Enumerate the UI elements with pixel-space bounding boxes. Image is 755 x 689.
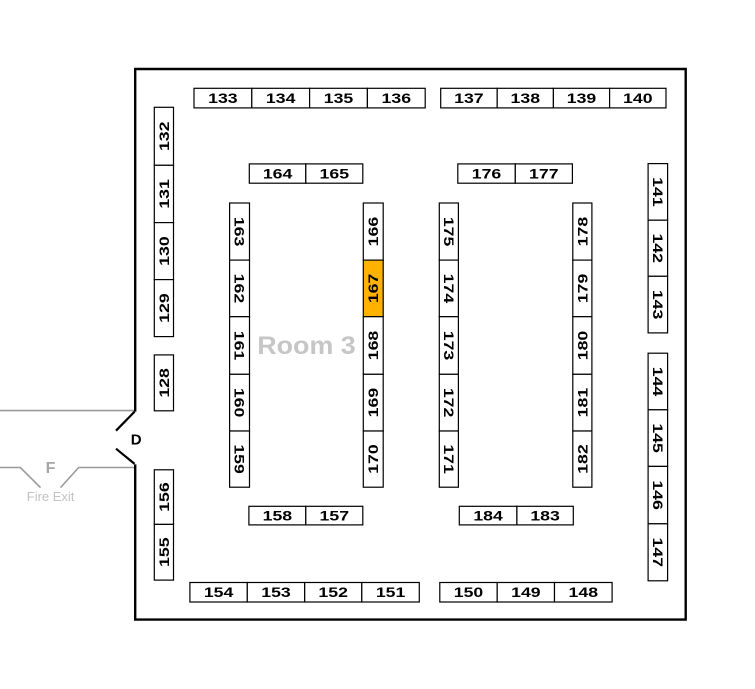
- svg-text:141: 141: [650, 177, 666, 207]
- svg-text:145: 145: [650, 423, 666, 453]
- svg-text:182: 182: [574, 444, 590, 474]
- svg-text:176: 176: [472, 166, 502, 182]
- svg-text:142: 142: [650, 233, 666, 263]
- svg-text:132: 132: [156, 121, 172, 151]
- svg-text:178: 178: [574, 217, 590, 247]
- svg-text:180: 180: [574, 330, 590, 360]
- svg-text:181: 181: [574, 388, 590, 418]
- svg-text:Fire Exit: Fire Exit: [27, 489, 75, 504]
- svg-text:F: F: [46, 460, 56, 477]
- svg-text:129: 129: [156, 293, 172, 323]
- svg-text:177: 177: [529, 166, 559, 182]
- svg-text:149: 149: [511, 584, 541, 600]
- svg-text:174: 174: [441, 274, 457, 304]
- svg-text:153: 153: [261, 584, 291, 600]
- svg-text:168: 168: [365, 330, 381, 360]
- svg-text:150: 150: [454, 584, 484, 600]
- svg-text:173: 173: [441, 331, 457, 361]
- svg-text:131: 131: [156, 179, 172, 209]
- svg-text:163: 163: [232, 217, 248, 247]
- svg-text:143: 143: [650, 290, 666, 320]
- svg-text:144: 144: [650, 367, 666, 397]
- svg-text:134: 134: [266, 90, 296, 106]
- svg-text:165: 165: [320, 166, 350, 182]
- svg-text:164: 164: [263, 166, 293, 182]
- svg-text:146: 146: [650, 480, 666, 510]
- svg-text:152: 152: [318, 584, 348, 600]
- svg-text:175: 175: [441, 217, 457, 247]
- svg-text:156: 156: [156, 482, 172, 512]
- svg-text:128: 128: [156, 368, 172, 398]
- svg-text:135: 135: [324, 90, 354, 106]
- svg-text:137: 137: [454, 90, 484, 106]
- svg-text:167: 167: [365, 273, 381, 303]
- svg-text:159: 159: [232, 444, 248, 474]
- svg-text:138: 138: [511, 90, 541, 106]
- svg-text:169: 169: [365, 388, 381, 418]
- svg-text:183: 183: [530, 508, 560, 524]
- svg-text:139: 139: [567, 90, 597, 106]
- svg-text:170: 170: [365, 444, 381, 474]
- svg-text:184: 184: [473, 508, 503, 524]
- svg-text:171: 171: [441, 444, 457, 474]
- svg-text:148: 148: [569, 584, 599, 600]
- svg-text:130: 130: [156, 236, 172, 266]
- svg-text:136: 136: [382, 90, 412, 106]
- svg-text:172: 172: [441, 388, 457, 418]
- svg-text:155: 155: [156, 537, 172, 567]
- svg-text:179: 179: [574, 273, 590, 303]
- svg-text:Room 3: Room 3: [257, 332, 356, 360]
- svg-text:D: D: [131, 432, 142, 449]
- svg-text:133: 133: [208, 90, 238, 106]
- svg-text:154: 154: [204, 584, 234, 600]
- svg-text:160: 160: [232, 388, 248, 418]
- svg-text:140: 140: [623, 90, 653, 106]
- svg-text:147: 147: [650, 538, 666, 568]
- svg-text:162: 162: [232, 274, 248, 304]
- svg-text:166: 166: [365, 217, 381, 247]
- svg-text:161: 161: [232, 331, 248, 361]
- svg-text:157: 157: [320, 508, 350, 524]
- svg-text:151: 151: [376, 584, 406, 600]
- svg-text:158: 158: [263, 508, 293, 524]
